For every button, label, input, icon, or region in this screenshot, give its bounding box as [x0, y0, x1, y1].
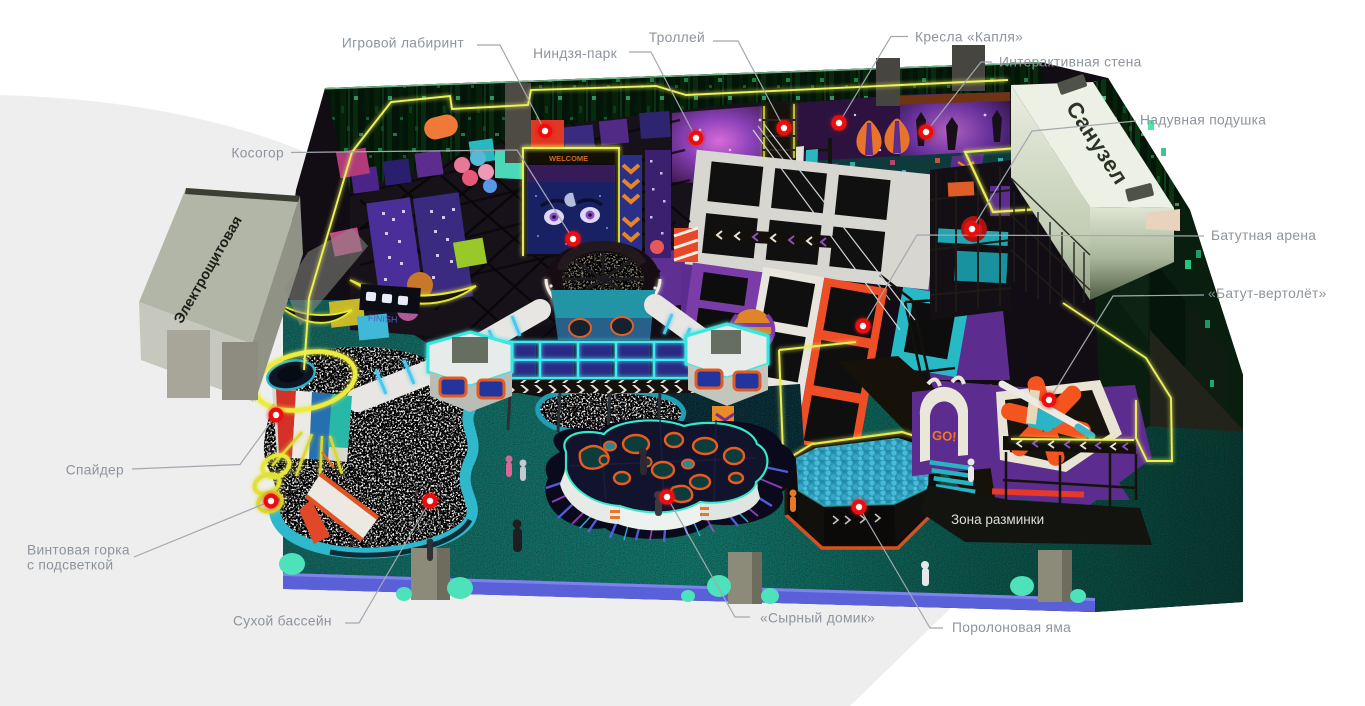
- svg-text:Сухой бассейн: Сухой бассейн: [233, 614, 332, 629]
- svg-text:WELCOME: WELCOME: [549, 154, 588, 163]
- svg-text:GO!: GO!: [932, 428, 958, 445]
- svg-text:Спайдер: Спайдер: [66, 463, 124, 478]
- svg-text:Косогор: Косогор: [231, 146, 284, 161]
- svg-text:FINISH: FINISH: [368, 313, 398, 325]
- svg-text:Поролоновая яма: Поролоновая яма: [952, 620, 1071, 635]
- svg-text:Игровой лабиринт: Игровой лабиринт: [342, 36, 465, 51]
- svg-text:«Сырный домик»: «Сырный домик»: [760, 611, 875, 626]
- svg-text:Зона разминки: Зона разминки: [951, 512, 1044, 527]
- svg-text:Батутная арена: Батутная арена: [1211, 228, 1316, 243]
- svg-text:Надувная подушка: Надувная подушка: [1140, 113, 1266, 128]
- svg-text:Винтовая горка: Винтовая горка: [27, 543, 130, 558]
- svg-text:Троллей: Троллей: [649, 30, 705, 45]
- svg-text:Интерактивная стена: Интерактивная стена: [999, 55, 1142, 70]
- svg-text:«Батут-вертолёт»: «Батут-вертолёт»: [1208, 286, 1327, 301]
- svg-text:с подсветкой: с подсветкой: [27, 558, 113, 573]
- svg-text:Кресла «Капля»: Кресла «Капля»: [915, 30, 1023, 45]
- svg-text:Ниндзя-парк: Ниндзя-парк: [533, 46, 618, 61]
